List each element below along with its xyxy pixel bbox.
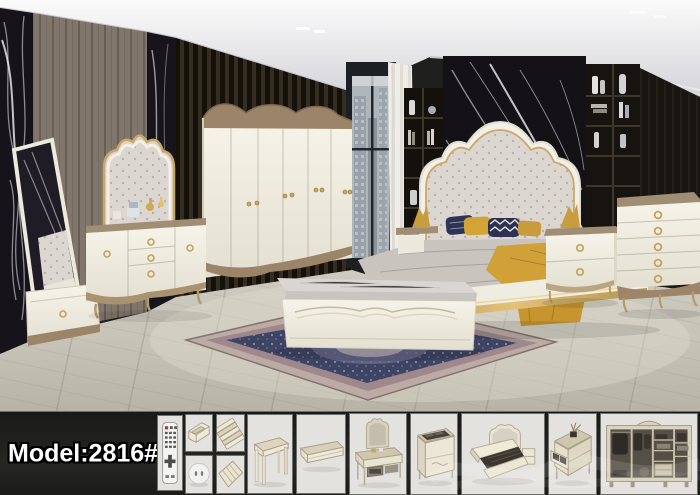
thumb-dressing-stool[interactable]: [247, 414, 293, 494]
nightstand-open-drawer-icon: [549, 414, 596, 494]
product-image-card: Model:2816#: [0, 0, 700, 495]
thumb-dresser-mirror-open[interactable]: [349, 413, 407, 495]
chest-open-top-icon: [411, 414, 457, 494]
thumb-storage-bench[interactable]: [296, 414, 346, 494]
bed-frame-part-icon: [186, 415, 212, 451]
bottom-bar: Model:2816#: [0, 411, 700, 495]
thumb-chest-open-top[interactable]: [410, 413, 458, 495]
storage-bench: [275, 278, 485, 361]
slat-base-icon: [217, 456, 244, 493]
thumb-wardrobe-interior[interactable]: [600, 413, 698, 495]
model-label: Model:2816#: [8, 440, 158, 469]
thumb-slat-base[interactable]: [216, 455, 245, 494]
power-socket-icon: [186, 456, 212, 493]
lift-storage-bed-icon: [462, 414, 544, 494]
remote-control-icon: [158, 416, 182, 490]
wardrobe-interior-icon: [601, 414, 697, 494]
thumb-nightstand-open-drawer[interactable]: [548, 413, 597, 495]
thumb-power-socket[interactable]: [185, 455, 213, 494]
thumb-remote-control[interactable]: [157, 415, 183, 491]
thumb-slat-pack[interactable]: [216, 414, 245, 452]
thumb-lift-storage-bed[interactable]: [461, 413, 545, 495]
dresser-mirror-open-icon: [350, 414, 406, 494]
dressing-stool-icon: [248, 415, 292, 493]
storage-bench-icon: [297, 415, 345, 493]
slat-pack-icon: [217, 415, 244, 451]
bedroom-photo: [0, 0, 700, 411]
wardrobe: [202, 104, 352, 278]
thumb-bed-frame-part[interactable]: [185, 414, 213, 452]
